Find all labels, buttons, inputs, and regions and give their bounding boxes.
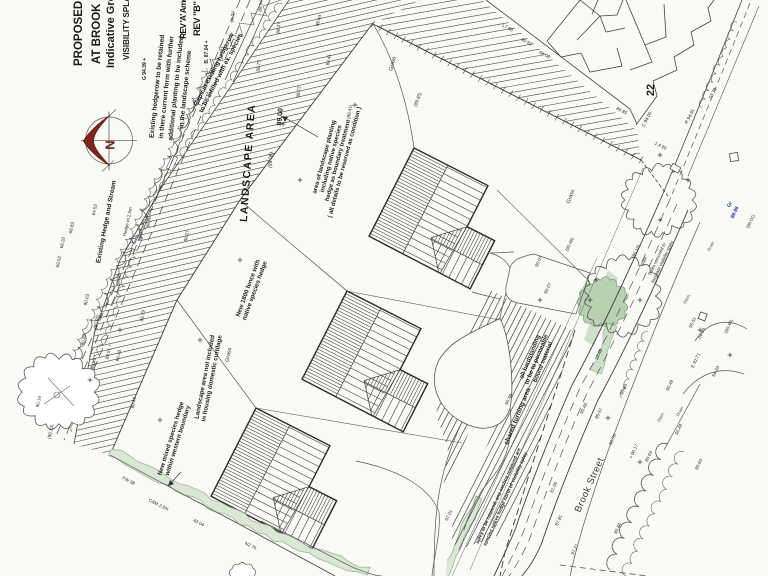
svg-text:VISIBILITY SPLAY: VISIBILITY SPLAY bbox=[122, 0, 131, 60]
svg-text:PROPOSED DEVELOPME: PROPOSED DEVELOPME bbox=[73, 0, 85, 66]
svg-text:Indicative Ground Layo: Indicative Ground Layo bbox=[105, 0, 117, 68]
svg-text:N: N bbox=[103, 140, 118, 149]
svg-text:REV 'A' Amended: REV 'A' Amended bbox=[178, 0, 188, 39]
svg-text:G 94.39 +: G 94.39 + bbox=[142, 58, 148, 80]
svg-text:88.72: 88.72 bbox=[296, 85, 302, 97]
svg-text:88.73: 88.73 bbox=[256, 59, 262, 71]
svg-text:(99.08): (99.08) bbox=[267, 151, 274, 168]
svg-text:94.34: 94.34 bbox=[230, 10, 236, 22]
svg-text:22: 22 bbox=[645, 84, 657, 96]
svg-text:REV "B": REV "B" bbox=[192, 1, 203, 36]
svg-text:B. 87.04 +: B. 87.04 + bbox=[204, 40, 210, 63]
svg-text:88.54: 88.54 bbox=[258, 0, 264, 12]
svg-text:AT BROOK STREET: AT BROOK STREET bbox=[91, 0, 103, 64]
svg-text:88.27: 88.27 bbox=[276, 21, 282, 33]
